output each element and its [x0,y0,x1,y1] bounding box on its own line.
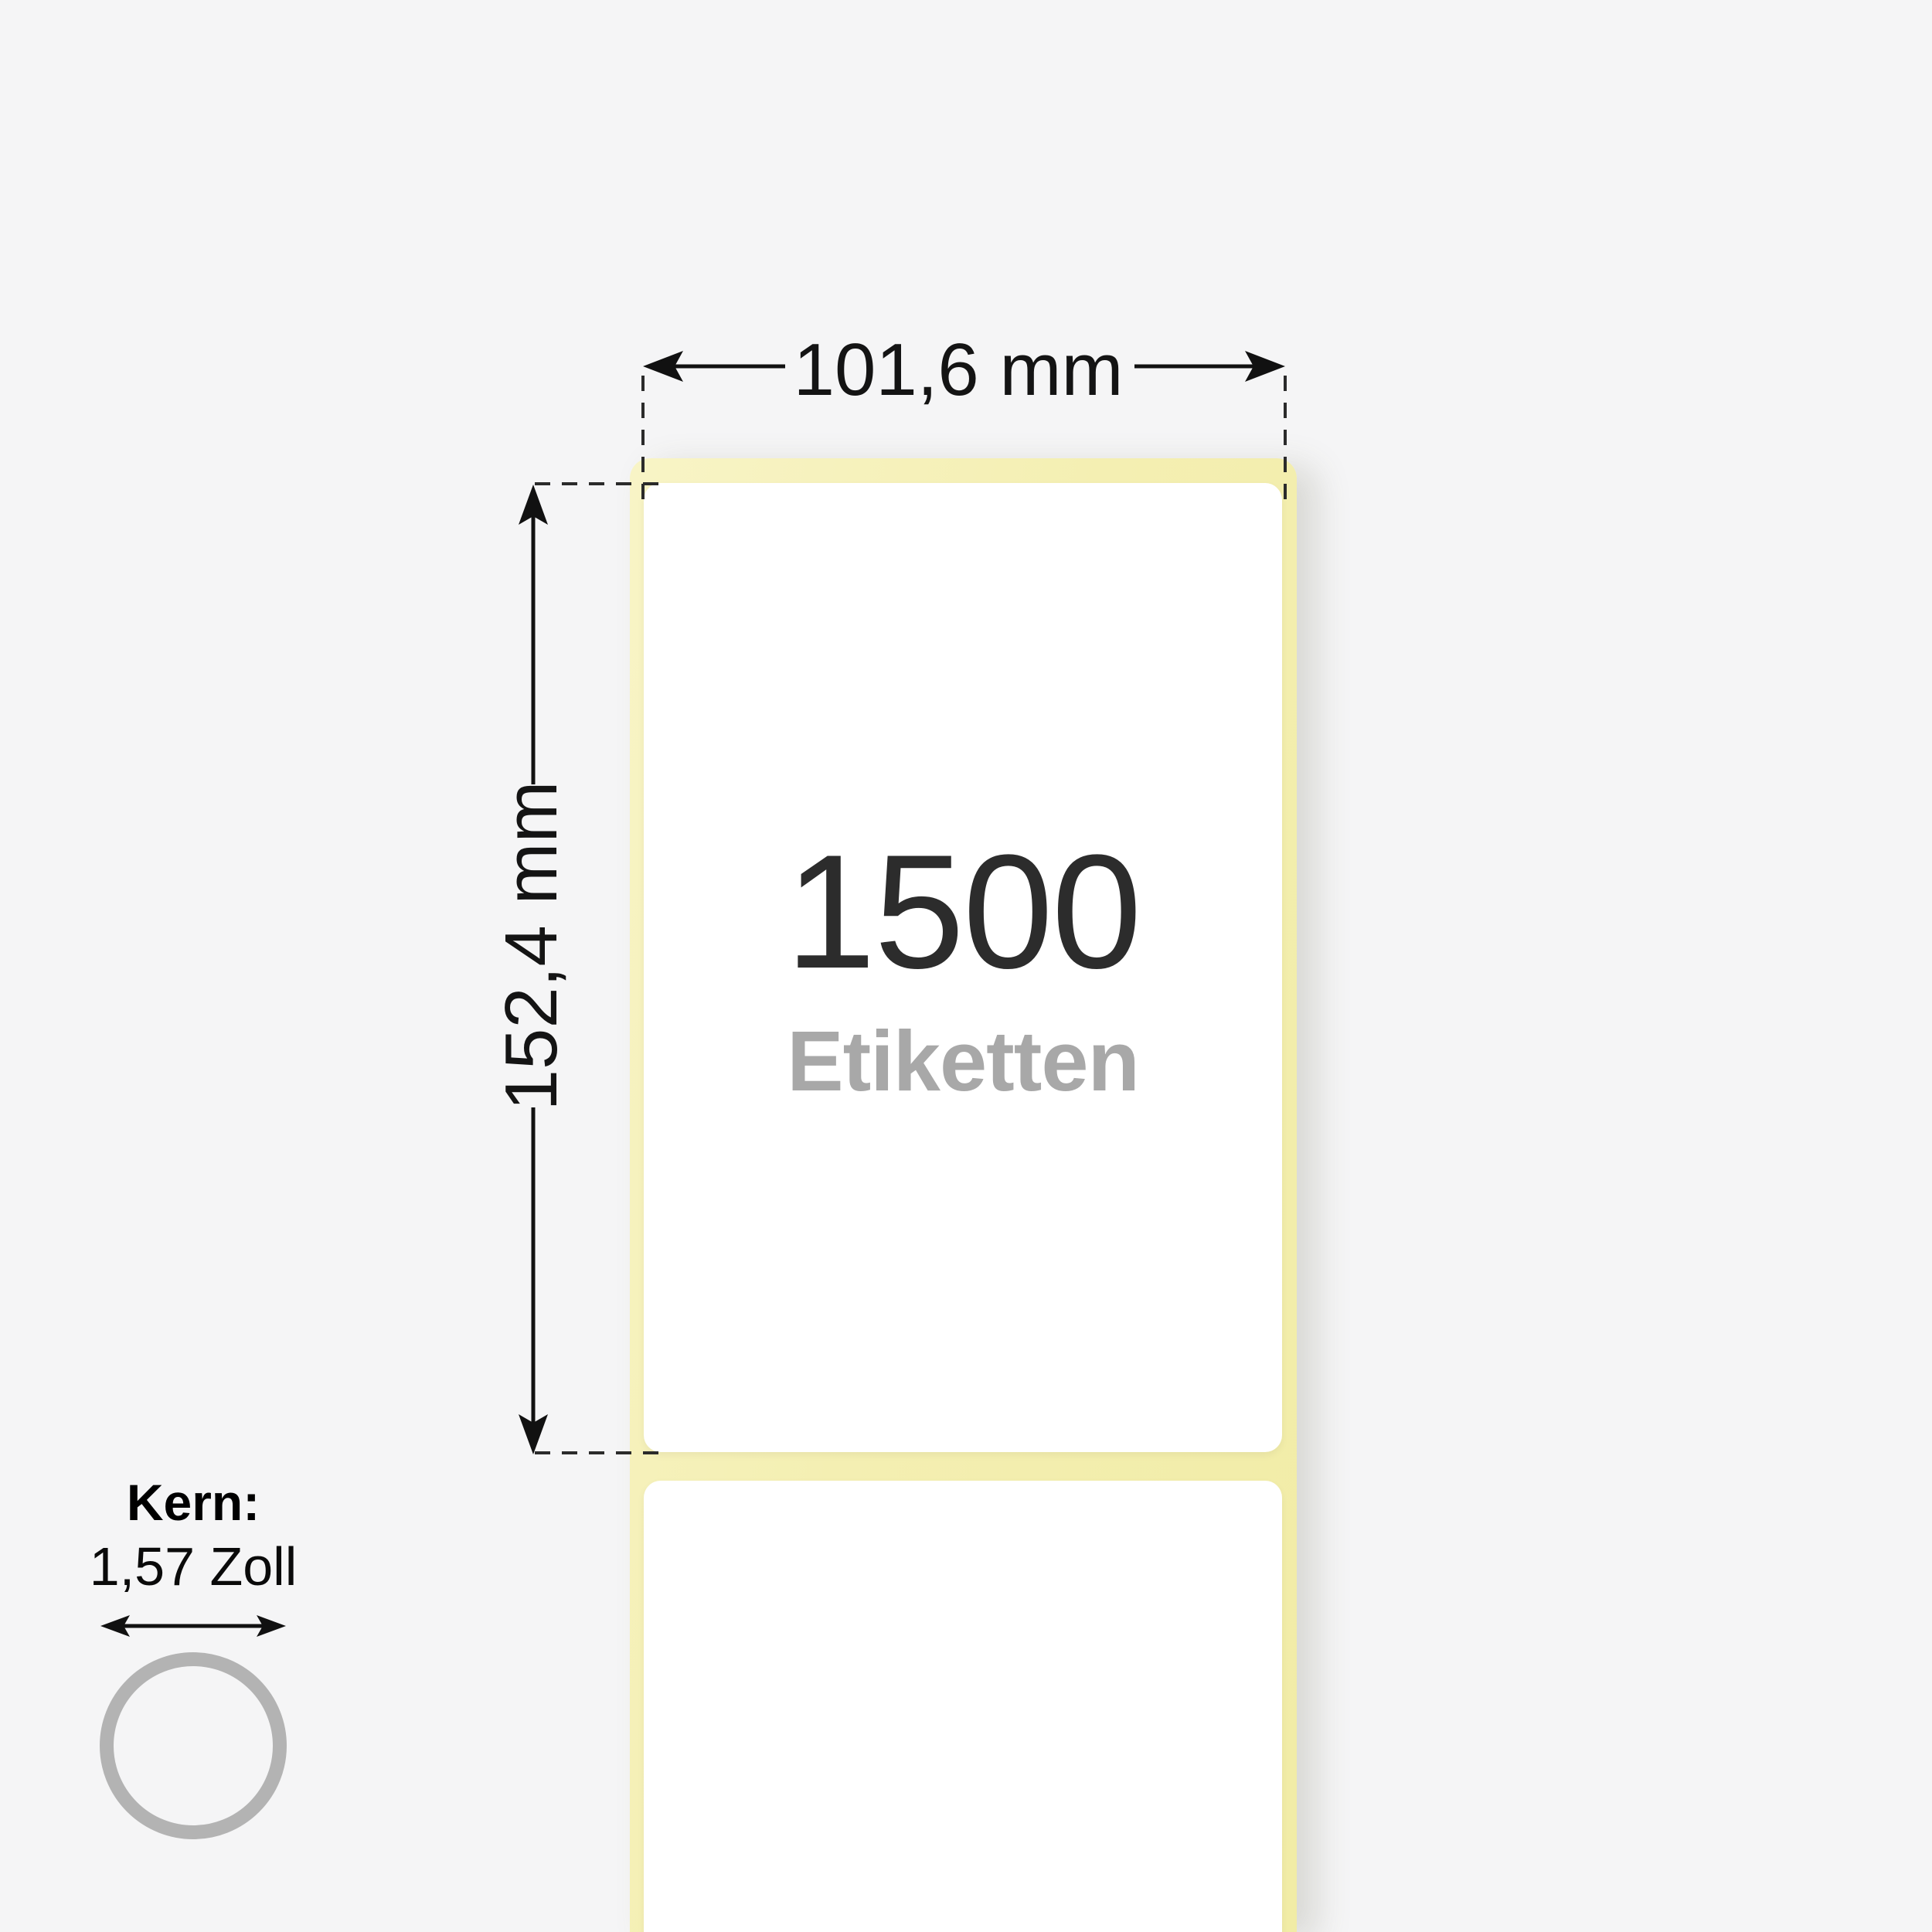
core-title: Kern: [127,1475,260,1531]
label-roll-liner: 1500 Etiketten [630,458,1297,1932]
core-ring-icon [107,1659,280,1832]
width-dimension-label: 101,6 mm [794,333,1124,407]
height-dim-arrowhead-bottom [519,1414,548,1454]
core-diameter-arrowhead-right [257,1615,286,1637]
height-dim-arrowhead-top [519,485,548,525]
label-count: 1500 [785,831,1140,993]
core-size: 1,57 Zoll [90,1537,297,1597]
blank-label-partial [644,1481,1282,1932]
blank-label-top: 1500 Etiketten [644,483,1282,1452]
width-dim-arrowhead-right [1245,351,1285,382]
label-count-unit: Etiketten [787,1019,1139,1104]
width-dim-arrowhead-left [643,351,683,382]
core-diameter-arrowhead-left [100,1615,130,1637]
height-dimension-label: 152,4 mm [495,781,569,1111]
label-roll-diagram: 1500 Etiketten 101,6 mm 152,4 mm Kern: 1… [0,0,1932,1932]
